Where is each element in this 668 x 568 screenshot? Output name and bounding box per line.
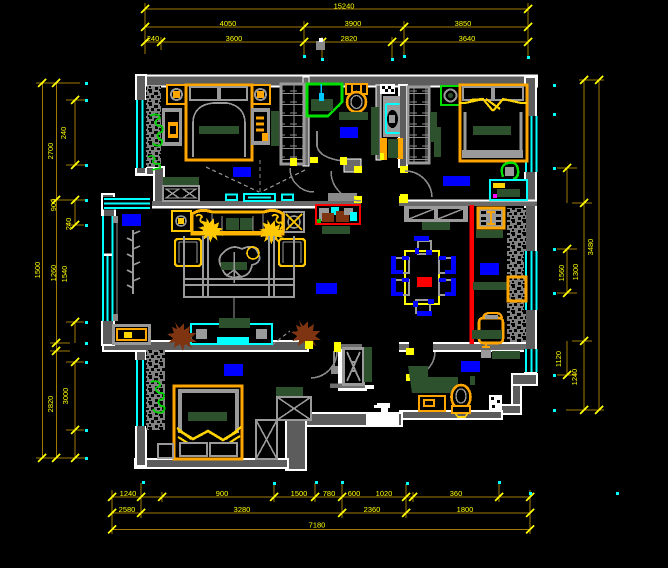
svg-text:3900: 3900: [345, 19, 362, 28]
svg-text:1540: 1540: [60, 266, 69, 283]
svg-text:600: 600: [348, 489, 361, 498]
svg-text:1500: 1500: [291, 489, 308, 498]
svg-text:15240: 15240: [334, 2, 355, 11]
svg-text:3640: 3640: [459, 34, 476, 43]
svg-text:1560: 1560: [557, 265, 566, 282]
svg-text:3850: 3850: [455, 19, 472, 28]
svg-text:3600: 3600: [226, 34, 243, 43]
svg-text:780: 780: [323, 489, 336, 498]
svg-text:2700: 2700: [46, 143, 55, 160]
svg-text:1020: 1020: [376, 489, 393, 498]
svg-text:1240: 1240: [120, 489, 137, 498]
svg-text:1240: 1240: [570, 369, 579, 386]
svg-text:2580: 2580: [119, 505, 136, 514]
svg-text:360: 360: [450, 489, 463, 498]
svg-text:2360: 2360: [364, 505, 381, 514]
svg-text:7180: 7180: [309, 521, 326, 530]
svg-text:3000: 3000: [61, 388, 70, 405]
svg-text:2820: 2820: [341, 34, 358, 43]
svg-text:900: 900: [216, 489, 229, 498]
svg-text:1120: 1120: [554, 351, 563, 367]
svg-text:1500: 1500: [33, 262, 42, 279]
svg-text:2820: 2820: [46, 396, 55, 413]
svg-text:240: 240: [64, 218, 73, 231]
svg-text:3480: 3480: [586, 239, 595, 256]
svg-text:240: 240: [59, 127, 68, 140]
svg-text:1260: 1260: [49, 265, 58, 282]
svg-text:900: 900: [49, 199, 58, 212]
svg-text:1300: 1300: [571, 264, 580, 281]
svg-text:1800: 1800: [457, 505, 474, 514]
svg-text:4050: 4050: [220, 19, 237, 28]
svg-text:3280: 3280: [234, 505, 251, 514]
